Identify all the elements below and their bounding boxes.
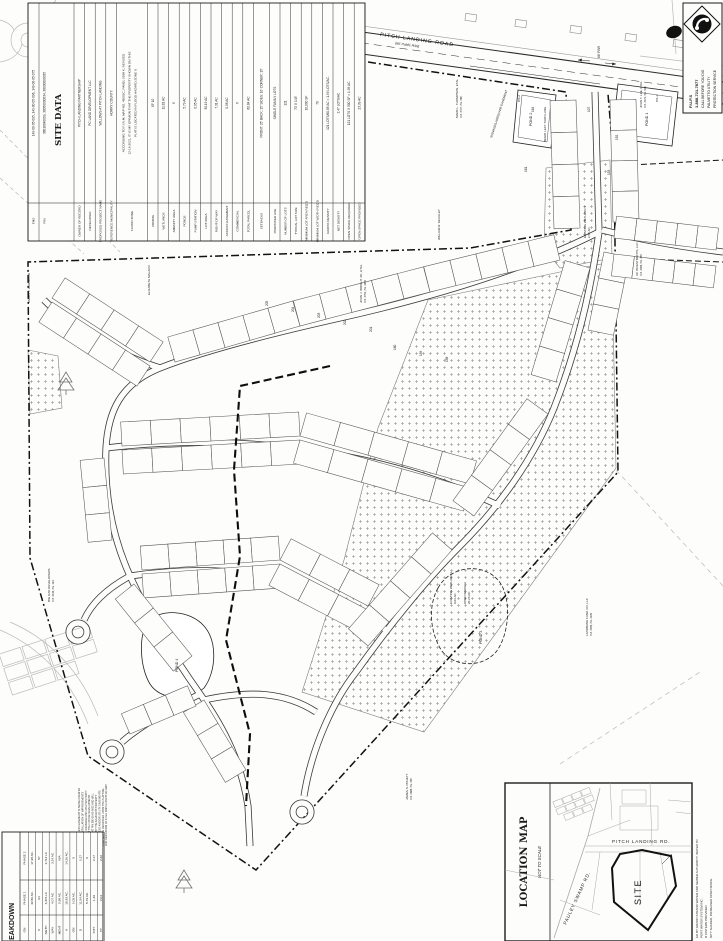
lot-parcel bbox=[269, 412, 300, 438]
breakdown-row-label: ON bbox=[22, 928, 26, 933]
breakdown-phase1-value: 0.05 AC. bbox=[71, 892, 75, 904]
pond-label: POND 3 bbox=[479, 631, 483, 644]
site-data-row-value: 149-00-05-095, 149-00-05-096, 149-00-05-… bbox=[32, 70, 36, 137]
adjacent-owner-label: JAMES J. HARWOOD bbox=[27, 272, 31, 303]
lot-number: 202 bbox=[343, 319, 347, 325]
breakdown-phase1-value: 2.04 bbox=[99, 895, 103, 901]
plat-sheet: PITCH LANDING ROAD (66' Public R/W) bbox=[0, 0, 723, 941]
lot-parcel bbox=[588, 304, 619, 335]
site-data-title: SITE DATA bbox=[54, 94, 64, 146]
site-data-row-value: 23.39 AC bbox=[358, 96, 362, 110]
site-data-row-value: 5.79 AC bbox=[183, 97, 187, 109]
site-data-table: SITE DATA TMS149-00-05-095, 149-00-05-09… bbox=[28, 3, 365, 242]
lot-parcel bbox=[612, 160, 639, 191]
site-data-row-value: 10,000 SF bbox=[305, 96, 309, 111]
map-side-note-line: NITY SHADED, INCREASED OPEN SPACE bbox=[709, 879, 713, 938]
site-data-row-value: HORRY COUNTY bbox=[109, 89, 113, 116]
lot-parcel bbox=[140, 544, 169, 570]
site-data-row-label: WETLANDS bbox=[162, 212, 166, 229]
lot-parcel bbox=[327, 450, 368, 483]
lot-parcel bbox=[553, 196, 580, 229]
adjacent-owner-label: LANDBANK FUND XIV, LLC bbox=[585, 597, 589, 636]
site-data-row-label: ZONING bbox=[151, 214, 155, 227]
site-data-row-value: 70' X 143' bbox=[294, 96, 298, 110]
site-data-row-label: NUMBER OF LOTS bbox=[284, 207, 288, 235]
breakdown-phase2-value: X bbox=[71, 857, 75, 859]
breakdown-phase1-value: 5.79 AC. bbox=[85, 892, 89, 904]
site-data-row-label: PROPOSED USE bbox=[273, 209, 277, 234]
lot-parcel bbox=[170, 570, 199, 596]
breakdown-phase2-value: 57 bbox=[37, 856, 41, 860]
breakdown-phase1-value: 3,376 LF. bbox=[44, 891, 48, 904]
adjacent-owner-label: JOHN J. WRIGHT JR., ETAL bbox=[359, 264, 363, 303]
site-data-row-label: NET DENSITY bbox=[337, 211, 341, 231]
site-data-row-label: OPEN SPACE REQUIRED bbox=[347, 202, 351, 240]
lot-parcel bbox=[655, 221, 678, 245]
lot-parcel bbox=[696, 226, 719, 250]
adjacent-owner-deed-ref: D.B. 3999, PG. 2199 bbox=[590, 612, 593, 636]
site-data-row-label: OWNER OF RECORD bbox=[78, 205, 82, 237]
adjacent-owner-label: ELIZABETH MALACO bbox=[147, 264, 151, 295]
pond-label: POND 2 bbox=[529, 113, 533, 126]
plat-drawing: PITCH LANDING ROAD (66' Public R/W) bbox=[0, 0, 723, 941]
lot-parcel bbox=[652, 259, 675, 283]
map-side-note-line: ED BY GRAND STRAND WATER AND SEWER AUTHO… bbox=[695, 839, 699, 938]
lot-parcel bbox=[611, 254, 634, 278]
breakdown-phase2-value: 2,712 LF. bbox=[44, 851, 48, 864]
adjacent-owner-label: BIG OAK DEVELOPERS bbox=[47, 568, 51, 602]
pond-label: POND 4 bbox=[175, 659, 179, 672]
adjacent-owner-label: JAMES S. PRUETT bbox=[405, 773, 409, 800]
lot-parcel bbox=[593, 278, 624, 309]
lot-number: 152 bbox=[615, 134, 619, 140]
area-acreage-label: 2.52 AC. bbox=[587, 226, 591, 238]
adjacent-owner-label: AC INVESTMENTS, LLC bbox=[635, 242, 639, 276]
lot-parcel bbox=[197, 568, 226, 594]
map-side-note-line: PORT WATER SYSTEM INC. bbox=[700, 898, 704, 938]
site-data-row-value: ACCORDING TO F.I.R.M. MAP NO. 45051C, PA… bbox=[121, 53, 125, 152]
site-data-row-label: GROSS DENSITY bbox=[326, 208, 330, 233]
pups-line: 1-888-721-7877 bbox=[694, 79, 699, 108]
site-data-row-label: FLOOD ZONE bbox=[130, 211, 134, 231]
lot-number: 161 bbox=[524, 166, 528, 172]
site-data-row-label: COMMERCIAL bbox=[236, 210, 240, 231]
site-data-row-label: PIN bbox=[43, 218, 47, 223]
turn-lane-label: BEGIN LEFT TURN LANE bbox=[543, 107, 547, 142]
entrance-rw-dim: 66' R/W bbox=[597, 45, 601, 58]
site-data-row-value: 38016040009, 38050000034, 38000000035 bbox=[43, 72, 47, 134]
area-acreage-label: 20.26 AC. bbox=[467, 591, 471, 604]
site-data-row-value: 2.47 LOTS/AC bbox=[337, 92, 341, 113]
lot-parcel bbox=[83, 485, 110, 515]
breakdown-phase2-value: PHASE 2 bbox=[22, 851, 26, 864]
adjacent-owner-deed-ref: D.B. 3727, PG. 588 bbox=[460, 96, 463, 118]
wetland-area-west bbox=[28, 350, 62, 414]
road-frontage-structures bbox=[465, 13, 685, 47]
site-data-row-label: MINIMUM LOT WIDTH REQ'D bbox=[315, 199, 319, 242]
site-data-row-value: FRONT: 25' BACK: 15' SIDES: 10' CORNER: … bbox=[260, 68, 264, 137]
site-data-row-value: 60.84 AC bbox=[246, 96, 250, 110]
breakdown-phase1-value: 11.54 AC. bbox=[78, 891, 82, 904]
location-map-subtitle: NOT TO SCALE bbox=[537, 846, 542, 878]
site-data-row-label: DEVELOPER bbox=[88, 211, 92, 231]
adjacent-owner-deed-ref: D.B. 4386, PG. 399 bbox=[640, 254, 643, 276]
breakdown-table: BREAKDOWN ONPHASE 1PHASE 242.86 AC.17.98… bbox=[2, 832, 104, 941]
breakdown-row-label: TY bbox=[99, 928, 103, 932]
location-map: LOCATION MAP NOT TO SCALE PITCH LANDING … bbox=[505, 783, 692, 941]
site-data-row-label: TOTAL PARCEL bbox=[246, 209, 250, 232]
site-data-row-label: SETBACKS bbox=[260, 213, 264, 230]
site-data-row-value: 0.05 AC bbox=[193, 97, 197, 109]
lot-parcel bbox=[168, 542, 197, 568]
lot-parcel bbox=[121, 420, 152, 446]
site-data-row-value: PC LAND DEVELOPMENT LLC bbox=[88, 80, 92, 126]
site-data-row-value: 11.81 AC bbox=[162, 96, 166, 110]
easement-note-line: AND DEDICATION OF A FEE SIMPLE RIGHT-OF-… bbox=[105, 784, 108, 846]
site-data-row-label: PUMP STATION bbox=[193, 210, 197, 233]
map-site-label: SITE bbox=[633, 879, 643, 905]
lot-number: 159 bbox=[419, 350, 423, 356]
lot-number: 158 bbox=[445, 356, 449, 362]
lot-parcel bbox=[225, 566, 254, 592]
pups-line: P.U.P.S bbox=[688, 94, 693, 108]
site-data-row-label: AMENITY AREA bbox=[172, 209, 176, 233]
site-data-row-value: SINGLE FAMILY LOTS bbox=[273, 87, 277, 120]
breakdown-phase2-value: 3.24 AC. bbox=[51, 852, 55, 864]
lot-parcel bbox=[152, 447, 183, 473]
adjacent-owner-label: JOHN T. LEE, ETAL bbox=[639, 81, 643, 108]
lot-parcel bbox=[673, 261, 696, 285]
signage-easement-label: SIGNAGE/LANDSCAPE EASEMENT bbox=[489, 89, 508, 138]
pups-line: PALMETTO UTILITY bbox=[707, 76, 711, 108]
breakdown-row-label: MENT bbox=[58, 926, 62, 935]
lot-parcel bbox=[614, 216, 637, 240]
site-data-row-label: REFERENCE MUNICIPALITY bbox=[109, 200, 113, 241]
area-acreage-label: 9.03 AC. bbox=[453, 592, 457, 604]
site-data-row-label: ACCESS EASEMENT bbox=[225, 206, 229, 237]
breakdown-phase1-value: 1.49 bbox=[92, 895, 96, 901]
lot-parcel bbox=[195, 540, 224, 566]
site-data-row-label: TYPICAL LOT SIZE bbox=[294, 207, 298, 234]
breakdown-phase1-value: 64 bbox=[37, 896, 41, 900]
adjacent-owner-deed-ref: D.B. 3761, PG. 2485 bbox=[364, 279, 367, 303]
lot-parcel bbox=[150, 419, 181, 445]
breakdown-phase1-value: 42.86 AC. bbox=[30, 891, 34, 905]
pups-line: PROTECTION SERVICE bbox=[713, 69, 717, 108]
lot-parcel bbox=[552, 164, 579, 197]
breakdown-phase1-value: 0.58 AC. bbox=[58, 892, 62, 904]
lot-parcel bbox=[675, 223, 698, 247]
breakdown-row-label: ON bbox=[71, 928, 75, 933]
breakdown-heading: BREAKDOWN bbox=[9, 903, 16, 941]
open-space-tag: OS-2 bbox=[517, 95, 521, 102]
lot-parcel bbox=[300, 413, 341, 446]
site-data-row-value: SF 10 bbox=[151, 99, 155, 108]
lot-parcel bbox=[241, 442, 272, 468]
pups-line: CALL BEFORE YOU DIG bbox=[701, 69, 705, 108]
lot-parcel bbox=[80, 458, 107, 488]
adjacent-owner-label: MARK L. THOMPSON, ETAL bbox=[455, 79, 459, 118]
map-side-note-line: R CISTERN PROVIDED bbox=[704, 904, 708, 938]
site-data-row-value: 0.58 AC bbox=[225, 97, 229, 109]
breakdown-phase1-value: PHASE 1 bbox=[22, 891, 26, 904]
breakdown-row-label: SITY bbox=[92, 927, 96, 934]
lot-parcel bbox=[211, 443, 242, 469]
breakdown-phase1-value: 15.93 AC. bbox=[64, 891, 68, 905]
site-data-row-label: RIGHT-OF-WAY bbox=[215, 210, 219, 233]
breakdown-phase2-value: X bbox=[85, 857, 89, 859]
lot-parcel bbox=[142, 572, 171, 598]
lot-parcel bbox=[634, 219, 657, 243]
breakdown-row-label: NGTH bbox=[44, 926, 48, 935]
lot-parcel bbox=[223, 538, 252, 564]
breakdown-phase2-value: 0.27 bbox=[78, 855, 82, 861]
lot-parcel bbox=[85, 513, 112, 543]
site-data-row-label: PROPOSED PROJECT NAME bbox=[99, 200, 103, 243]
breakdown-phase1-value: 4.07 AC. bbox=[51, 892, 55, 904]
site-data-row-label: PONDS bbox=[183, 215, 187, 226]
lot-number: 164 bbox=[531, 106, 535, 112]
site-data-row-value: 12-16-2021, IT IS MY OPINION THAT THE PR… bbox=[127, 52, 131, 155]
lot-number: 204 bbox=[291, 306, 295, 312]
breakdown-phase2-value: 2.17 bbox=[92, 855, 96, 861]
site-data-row-value: 30.19 AC bbox=[204, 96, 208, 110]
map-road1-label: PITCH LANDING RD. bbox=[612, 839, 670, 844]
adjacent-owner-label: WILLIAM R. McAULEY bbox=[437, 209, 441, 240]
lot-parcel bbox=[122, 448, 153, 474]
site-data-row-value: 7.31 AC bbox=[215, 97, 219, 109]
lot-number: 153 bbox=[607, 169, 611, 175]
lot-parcel bbox=[693, 264, 716, 288]
site-data-row-label: OPEN SPACE PROVIDED bbox=[358, 202, 362, 240]
lot-number: 205 bbox=[265, 300, 269, 306]
site-data-row-value: 121 LOTS X 500 SF = 1.39 AC. bbox=[347, 81, 351, 126]
site-data-row-value: PITCH LANDING PARTNERSHIP bbox=[78, 79, 82, 127]
site-data-row-label: LOT AREA bbox=[204, 213, 208, 229]
breakdown-phase2-value: 2.22 bbox=[99, 855, 103, 861]
breakdown-phase2-value: 17.98 AC. bbox=[30, 851, 34, 865]
lot-parcel bbox=[293, 440, 334, 473]
adjacent-owner-deed-ref: D.B. 4019, PG. 124 bbox=[52, 580, 55, 602]
breakdown-row-label: WAY bbox=[51, 927, 55, 934]
adjacent-owner-deed-ref: D.B. 2888, PG. 336 bbox=[410, 778, 413, 800]
lot-parcel bbox=[181, 445, 212, 471]
map-side-notes: ED BY GRAND STRAND WATER AND SEWER AUTHO… bbox=[695, 839, 713, 938]
pond-label: POND 1 bbox=[645, 113, 649, 126]
lot-parcel bbox=[334, 423, 375, 456]
site-data-row-value: 70 bbox=[315, 101, 319, 105]
lot-parcel bbox=[610, 99, 637, 130]
lot-number: 107 bbox=[587, 106, 591, 112]
breakdown-phase2-value: 14.26 AC. bbox=[64, 851, 68, 865]
site-data-row-value: WILLOWS AT PITCH LANDING bbox=[99, 80, 103, 126]
lot-parcel bbox=[611, 130, 638, 161]
lot-parcel bbox=[180, 417, 211, 443]
lot-parcel bbox=[550, 100, 577, 133]
lot-parcel bbox=[551, 132, 578, 165]
site-data-row-value: 121 LOTS/60.85 AC = 1.99 LOTS/AC. bbox=[326, 76, 330, 130]
site-data-row-label: TMS bbox=[32, 218, 36, 225]
lot-number: 203 bbox=[317, 312, 321, 318]
location-map-title: LOCATION MAP bbox=[519, 816, 530, 907]
breakdown-row-label: S bbox=[37, 929, 41, 931]
site-data-row-label: MINIMUM LOT AREA REQ'D bbox=[305, 200, 309, 241]
lot-number: 160 bbox=[393, 344, 397, 350]
lot-parcel bbox=[251, 536, 280, 562]
adjacent-owner-deed-ref: D.B. 3471, PG. 916 bbox=[644, 86, 647, 108]
lot-number: 201 bbox=[369, 326, 373, 332]
lot-parcel bbox=[239, 414, 270, 440]
site-data-row-value: PLAT IS LOCATED IN FLOOD HAZARD ZONE X bbox=[133, 69, 137, 137]
open-space-tag: OS-1 bbox=[655, 95, 659, 102]
site-data-row-value: 121 bbox=[284, 100, 288, 106]
